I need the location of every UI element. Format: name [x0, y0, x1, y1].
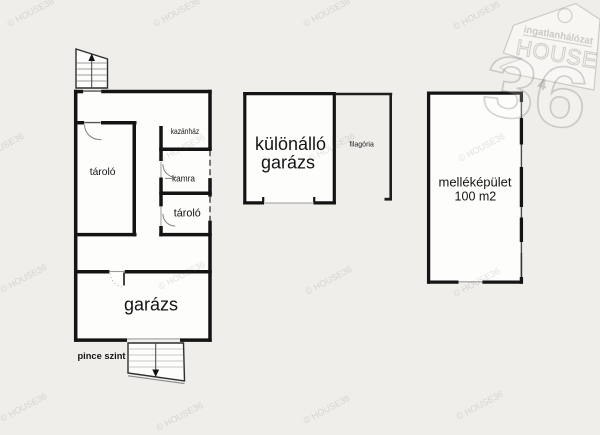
svg-text:filagória: filagória [349, 141, 374, 148]
svg-text:tároló: tároló [174, 207, 201, 219]
svg-text:100 m2: 100 m2 [455, 189, 497, 203]
svg-text:garázs: garázs [124, 295, 178, 315]
svg-text:melléképület: melléképület [439, 174, 512, 189]
svg-text:36: 36 [476, 37, 595, 150]
svg-text:kamra: kamra [172, 174, 196, 185]
svg-text:pince szint: pince szint [77, 351, 125, 361]
svg-text:tároló: tároló [90, 167, 116, 178]
